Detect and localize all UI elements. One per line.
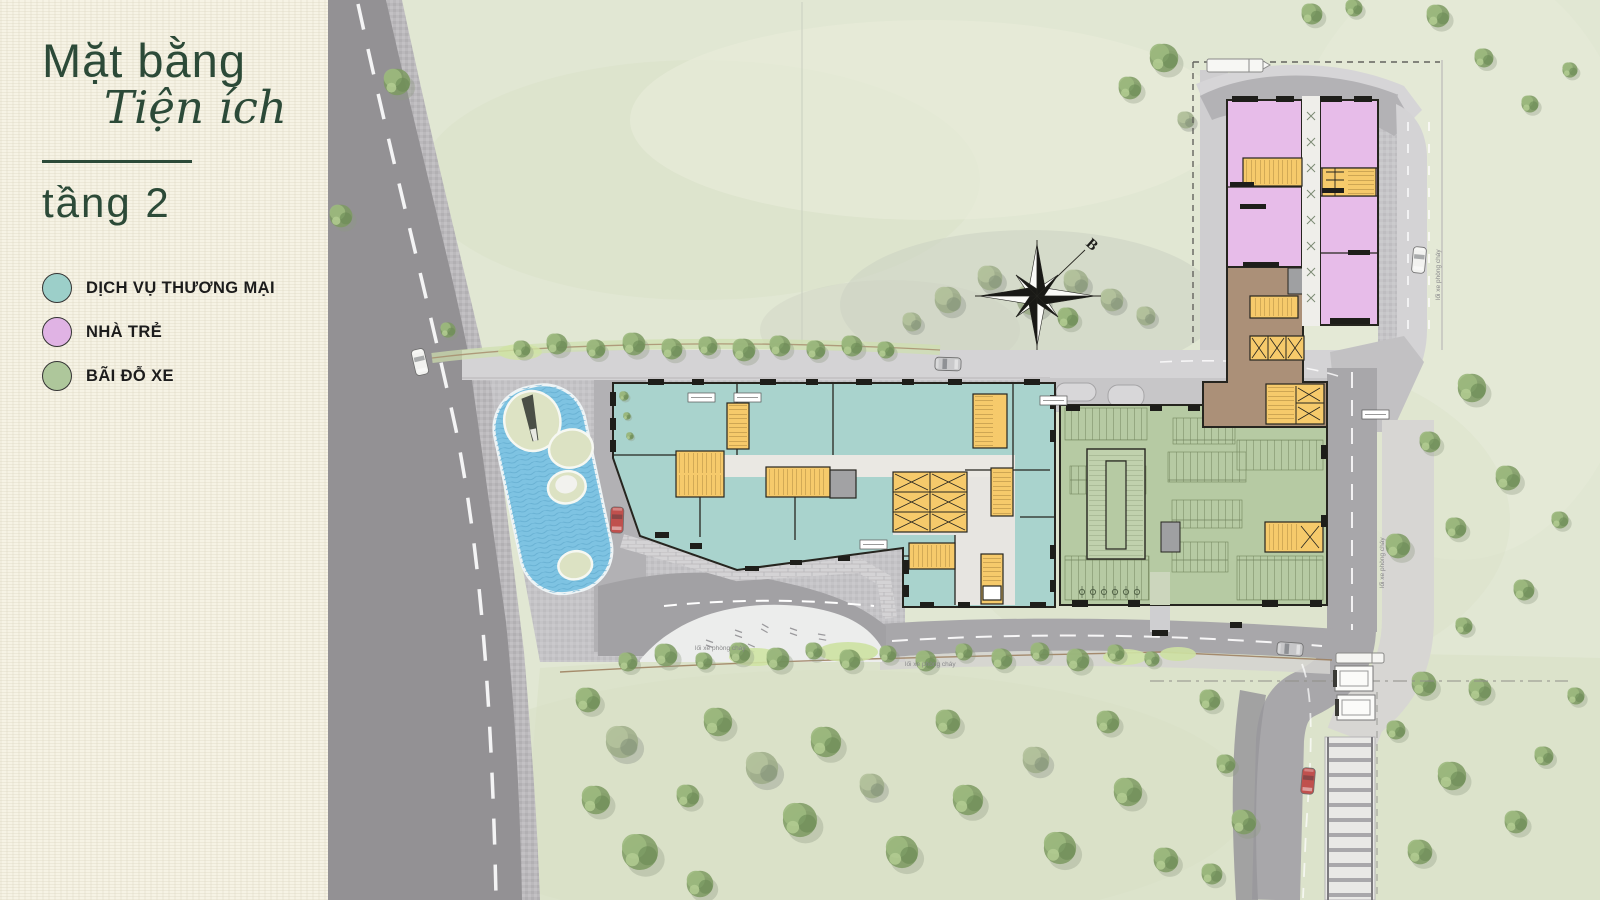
site-plan-page: B: [0, 0, 1600, 900]
fire-lane-label: lối xe phòng cháy: [695, 643, 746, 652]
car-icon: [610, 507, 624, 533]
page-title: Mặt bằng: [42, 36, 328, 85]
info-panel: Mặt bằng Tiện ích tầng 2 DỊCH VỤ THƯƠNG …: [0, 0, 328, 900]
legend: DỊCH VỤ THƯƠNG MẠI NHÀ TRẺ BÃI ĐỖ XE: [42, 273, 328, 391]
page-subtitle: Tiện ích: [104, 81, 328, 134]
car-icon: [1411, 246, 1426, 273]
truck-icon: [1207, 59, 1270, 72]
title-divider: [42, 160, 192, 163]
kindergarten-swatch-icon: [42, 317, 72, 347]
legend-label: DỊCH VỤ THƯƠNG MẠI: [86, 279, 275, 298]
legend-label: NHÀ TRẺ: [86, 323, 162, 342]
legend-label: BÃI ĐỖ XE: [86, 367, 174, 386]
fire-lane-label: lối xe phòng cháy: [905, 659, 956, 668]
car-icon: [1300, 767, 1315, 794]
car-icon: [1277, 642, 1304, 657]
building-parking-garage: [1060, 405, 1327, 605]
legend-item-kindergarten: NHÀ TRẺ: [42, 317, 328, 347]
legend-item-parking: BÃI ĐỖ XE: [42, 361, 328, 391]
legend-item-commercial-services: DỊCH VỤ THƯƠNG MẠI: [42, 273, 328, 303]
commercial-services-swatch-icon: [42, 273, 72, 303]
parking-swatch-icon: [42, 361, 72, 391]
floor-label: tầng 2: [42, 179, 328, 227]
fire-lane-label: lối xe phòng cháy: [1433, 249, 1442, 300]
fire-lane-label: lối xe phòng cháy: [1377, 537, 1386, 588]
car-icon: [935, 357, 961, 371]
